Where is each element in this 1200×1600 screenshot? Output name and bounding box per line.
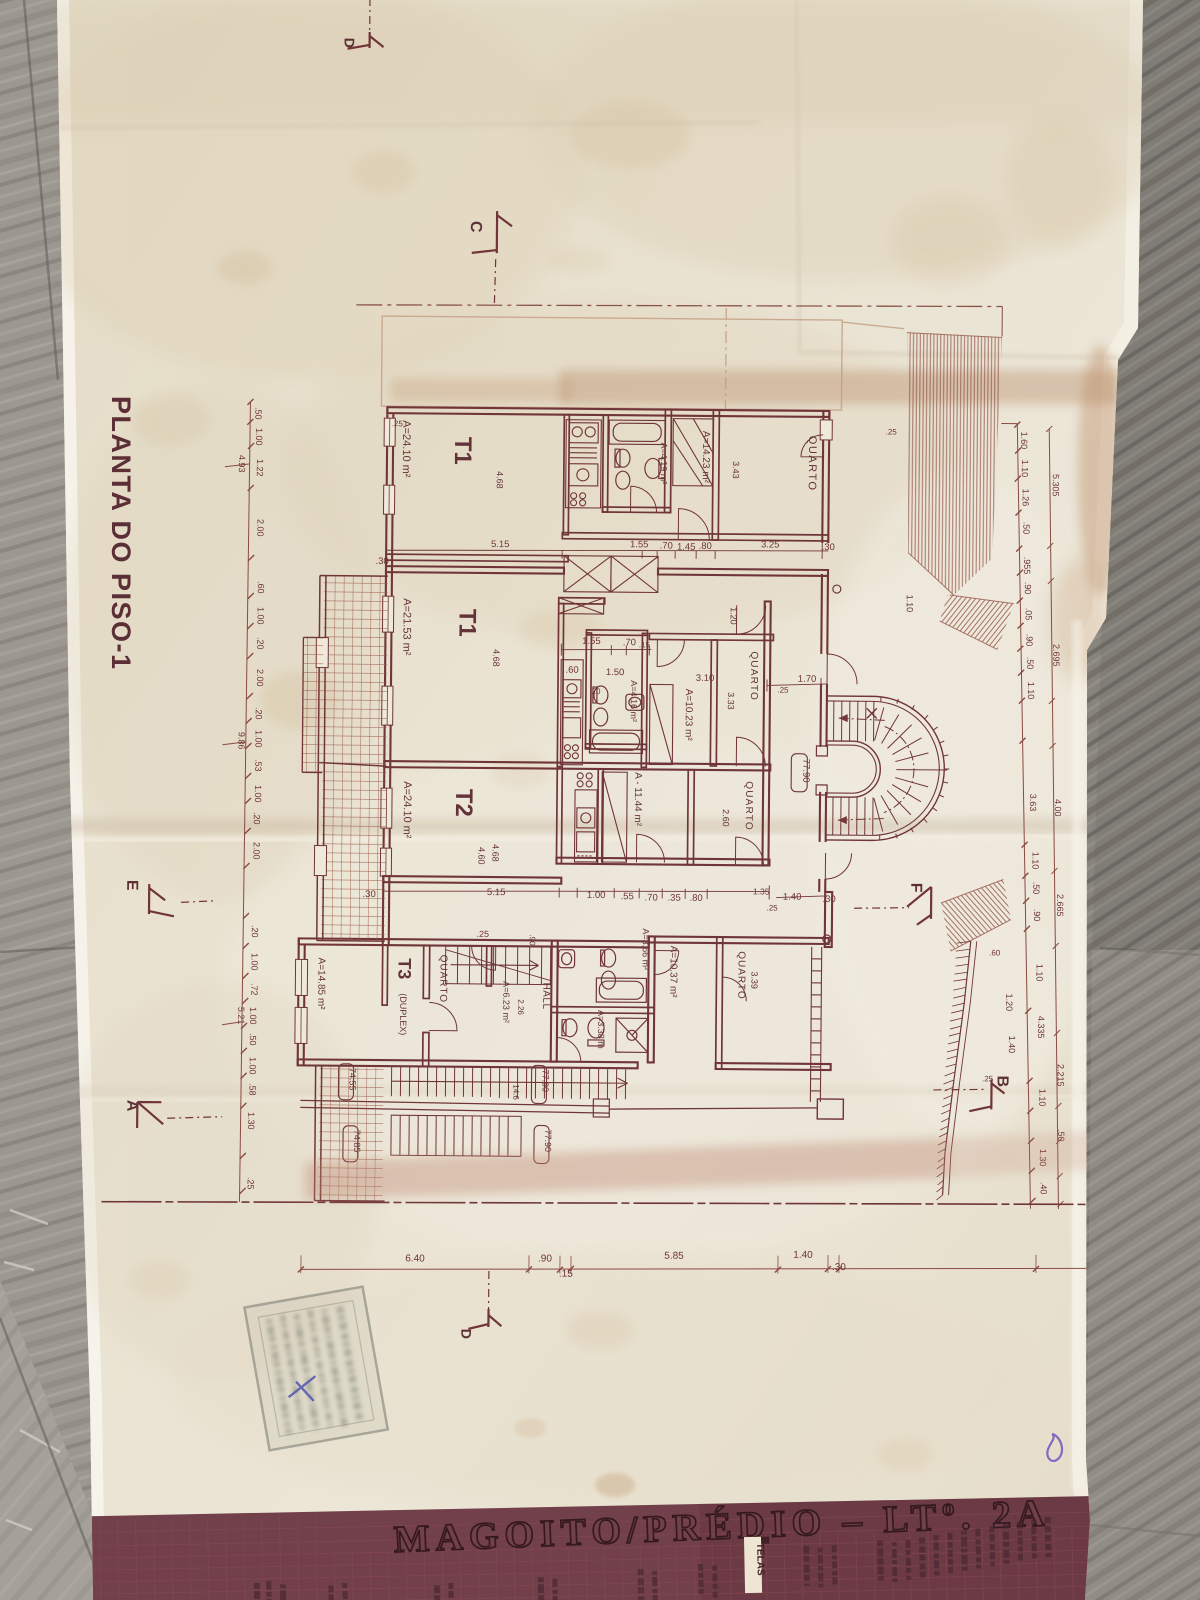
svg-text:3.25: 3.25 [761,539,780,550]
svg-text:.70: .70 [660,541,673,552]
svg-text:.15: .15 [559,1269,573,1280]
svg-text:4.335: 4.335 [1036,1016,1046,1039]
svg-text:HALL: HALL [540,982,551,1009]
svg-text:1.10: 1.10 [1037,1089,1047,1107]
svg-text:1.00: 1.00 [248,1057,258,1075]
svg-text:QUARTO: QUARTO [437,955,448,1004]
svg-text:A=21.53 m²: A=21.53 m² [400,598,413,656]
svg-text:QUARTO: QUARTO [748,651,759,701]
svg-text:T1: T1 [449,437,476,465]
svg-text:D: D [342,38,358,48]
svg-text:.72: .72 [249,983,259,996]
svg-text:(DUPLEX): (DUPLEX) [398,993,408,1035]
svg-text:A=24.10 m²: A=24.10 m² [401,781,414,839]
svg-text:.50: .50 [1025,657,1035,670]
svg-text:.50: .50 [1021,522,1031,535]
svg-text:4.68: 4.68 [490,844,500,862]
svg-text:4.68: 4.68 [495,471,505,489]
svg-text:1.10: 1.10 [905,595,915,613]
svg-text:9.86: 9.86 [236,732,246,750]
svg-text:1.55: 1.55 [582,636,601,647]
svg-text:2.215: 2.215 [1056,1064,1066,1087]
svg-text:C: C [467,221,484,233]
svg-text:.60: .60 [565,665,578,676]
svg-text:2.665: 2.665 [1055,894,1065,917]
svg-text:.90: .90 [1032,909,1042,922]
svg-text:.25: .25 [392,419,404,428]
svg-text:1.00: 1.00 [253,730,263,748]
svg-text:.15: .15 [639,640,651,649]
svg-text:.20: .20 [252,812,262,825]
svg-text:.58: .58 [247,1083,257,1096]
svg-text:A=3.66 m²: A=3.66 m² [641,928,651,970]
svg-text:4.93: 4.93 [237,455,247,473]
svg-text:QUARTO: QUARTO [735,951,746,1000]
svg-text:.30: .30 [375,556,388,567]
svg-text:F: F [907,883,924,893]
svg-text:T1: T1 [453,609,480,637]
svg-text:2.26: 2.26 [516,999,525,1015]
svg-text:1.10: 1.10 [1026,682,1036,700]
svg-text:.60: .60 [989,948,1001,957]
svg-text:.25: .25 [982,1074,994,1083]
svg-text:77.90: 77.90 [543,1130,553,1153]
svg-text:2.00: 2.00 [251,842,261,860]
svg-text:A=24.10 m²: A=24.10 m² [400,420,413,478]
svg-text:A=3.38 m: A=3.38 m [596,1010,606,1049]
svg-text:A=10.37 m²: A=10.37 m² [667,946,678,999]
svg-text:.50: .50 [248,1033,258,1046]
svg-text:A=4.16 m²: A=4.16 m² [629,680,639,722]
svg-text:.70: .70 [623,637,636,648]
svg-text:.40: .40 [1039,1182,1049,1195]
svg-text:1.00: 1.00 [248,1007,258,1025]
svg-text:14.6: 14.6 [511,1084,520,1100]
svg-text:1.00: 1.00 [253,785,263,803]
svg-text:1.26: 1.26 [1021,489,1031,507]
svg-text:A - 11.44 m²: A - 11.44 m² [632,772,643,826]
svg-text:4.60: 4.60 [476,847,486,865]
svg-text:2.00: 2.00 [255,519,265,537]
svg-text:A: A [123,1100,140,1112]
svg-text:.05: .05 [1024,608,1034,621]
svg-text:.70: .70 [644,892,657,903]
svg-text:1.40: 1.40 [793,1250,813,1261]
svg-text:5.15: 5.15 [487,887,506,898]
svg-text:1.10: 1.10 [1034,964,1044,982]
svg-text:E: E [123,880,140,891]
svg-text:77.90: 77.90 [800,759,811,783]
svg-text:.20: .20 [254,707,264,720]
svg-text:.955: .955 [1022,557,1032,575]
svg-text:PLANTA DO PISO-1: PLANTA DO PISO-1 [106,396,136,671]
svg-text:1.30: 1.30 [246,1112,256,1130]
svg-text:.90: .90 [528,934,537,946]
svg-text:T2: T2 [450,789,477,817]
svg-text:QUARTO: QUARTO [806,436,818,492]
svg-text:.20: .20 [255,637,265,650]
svg-text:77.90: 77.90 [540,1069,550,1092]
svg-text:1.20: 1.20 [1004,994,1014,1012]
svg-text:3.39: 3.39 [749,971,759,989]
svg-text:.50: .50 [253,407,263,420]
svg-text:1.10: 1.10 [1030,852,1040,870]
svg-text:B: B [994,1075,1011,1087]
svg-text:4.00: 4.00 [1053,799,1063,817]
svg-text:D: D [458,1329,474,1339]
svg-text:.25: .25 [246,1177,256,1190]
svg-text:1.20: 1.20 [729,607,739,625]
svg-text:1.22: 1.22 [255,459,265,477]
svg-text:1.50: 1.50 [606,667,625,678]
svg-text:1.70: 1.70 [798,674,817,685]
svg-text:2.695: 2.695 [1051,644,1061,667]
svg-text:.25: .25 [477,929,490,939]
svg-text:.25: .25 [777,686,789,695]
svg-text:1.40: 1.40 [1007,1036,1017,1054]
svg-text:A=14.85 m²: A=14.85 m² [315,958,326,1011]
svg-text:.90: .90 [538,1253,552,1264]
svg-text:3.43: 3.43 [731,461,741,479]
svg-text:1.00: 1.00 [256,607,266,625]
svg-text:.90: .90 [1023,582,1033,595]
svg-text:.20: .20 [589,687,601,696]
svg-text:3.10: 3.10 [696,673,715,684]
svg-text:A=10.23 m²: A=10.23 m² [683,689,694,742]
svg-text:T3: T3 [394,958,414,979]
svg-text:1.00: 1.00 [249,953,259,971]
svg-text:.35: .35 [667,893,680,904]
svg-text:.30: .30 [832,1262,846,1273]
svg-text:3.63: 3.63 [1028,794,1038,812]
svg-text:.53: .53 [253,759,263,772]
svg-text:1.55: 1.55 [630,539,649,550]
svg-text:3.33: 3.33 [726,692,736,710]
svg-text:A=4.19 m²: A=4.19 m² [659,443,669,485]
svg-text:2.60: 2.60 [721,809,731,827]
svg-text:A=6.23 m²: A=6.23 m² [501,981,511,1023]
svg-text:A=14.23 m²: A=14.23 m² [700,431,711,484]
svg-text:.80: .80 [689,893,702,904]
svg-text:.60: .60 [256,581,266,594]
svg-text:.30: .30 [363,889,376,900]
svg-text:.50: .50 [1031,882,1041,895]
svg-text:1.10: 1.10 [1020,460,1030,478]
svg-text:TELAS: TELAS [754,1543,766,1576]
svg-text:1.60: 1.60 [1019,432,1029,450]
svg-text:.55: .55 [620,891,633,902]
svg-text:4.68: 4.68 [491,649,501,667]
svg-text:5.305: 5.305 [1051,474,1061,497]
svg-text:QUARTO: QUARTO [743,781,754,831]
svg-text:.25: .25 [766,903,778,912]
svg-text:6.40: 6.40 [405,1253,425,1264]
svg-text:5.21: 5.21 [236,1007,246,1025]
svg-text:2.00: 2.00 [255,669,265,687]
svg-text:.20: .20 [250,925,260,938]
svg-text:5.15: 5.15 [491,539,510,550]
svg-text:.90: .90 [1024,634,1034,647]
svg-text:.25: .25 [886,427,898,436]
svg-text:5.85: 5.85 [664,1251,684,1262]
svg-text:1.00: 1.00 [254,428,264,446]
